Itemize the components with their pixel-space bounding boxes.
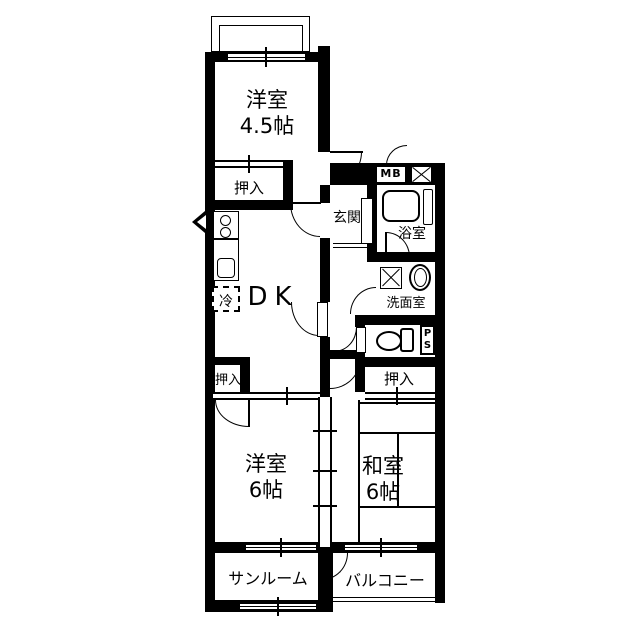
closet-west-label: 押入 [214, 369, 242, 388]
closet-east-sliding-front [365, 392, 435, 400]
meter-box-label: MB [377, 167, 405, 180]
bath-counter-icon [423, 189, 433, 225]
partition-tick [313, 430, 337, 432]
washbasin-inner [414, 268, 427, 287]
west6-size: 6帖 [216, 474, 316, 504]
door-leaf-room45 [330, 151, 363, 153]
window-tick [248, 155, 250, 173]
toilet-tank-icon [400, 328, 414, 352]
door-leaf-wc [356, 327, 366, 353]
meter-box: MB [376, 166, 406, 183]
wall-genkan-left-a [320, 185, 330, 203]
wall-right-outer [435, 163, 445, 603]
closet-top-label: 押入 [226, 177, 272, 198]
wall-closet-top-bottom [205, 200, 293, 210]
door-leaf-east6 [330, 357, 361, 359]
door-leaf-bathroom [385, 232, 387, 257]
refrigerator-label: 冷 [214, 291, 238, 311]
door-leaf-genkan-dk [290, 202, 321, 204]
wall-right-of-room45 [318, 46, 330, 152]
vent-icon-inner [197, 215, 206, 229]
toilet-icon [376, 331, 402, 351]
door-leaf-west6 [248, 400, 250, 427]
window-tick [380, 538, 382, 557]
tatami-line [358, 402, 436, 404]
door-arc-entrance [386, 145, 407, 165]
sliding-partition-west6-east6 [318, 397, 332, 547]
sliding-door-dk-west6 [213, 392, 320, 400]
window-tick [265, 47, 267, 67]
door-leaf-hall-dk [317, 302, 328, 337]
refrigerator-icon: 冷 [212, 286, 240, 312]
window-tick [280, 538, 282, 557]
door-arc-washroom [350, 287, 376, 314]
stove-burner-icon [220, 215, 231, 226]
dk-label: DK [240, 282, 306, 312]
bathtub-icon [382, 190, 420, 222]
stove-burner-icon [220, 227, 231, 238]
entrance-edge-line [333, 243, 367, 248]
wall-wc-left-upper [355, 315, 365, 327]
sunroom-label: サンルーム [216, 565, 320, 589]
bathroom-label: 浴室 [395, 223, 429, 243]
balcony-label: バルコニー [335, 567, 435, 591]
door-arc-west6 [215, 400, 249, 427]
meter-xbox-icon [411, 166, 432, 183]
window-tick [277, 597, 279, 616]
wall-left-outer [205, 52, 215, 612]
window-tick [286, 387, 288, 405]
wall-genkan-left-b [320, 238, 330, 302]
wall-hall-left [320, 337, 330, 397]
room45-size: 4.5帖 [217, 110, 317, 140]
pipe-space-s-label: S [422, 339, 433, 352]
pipe-space-box: P S [422, 327, 433, 353]
kitchen-sink-icon [217, 258, 235, 278]
eaves-outline-inner [219, 25, 303, 52]
door-arc-wc [334, 327, 357, 352]
balcony-rail [333, 597, 435, 602]
entrance-label: 玄関 [331, 207, 363, 227]
wall-wc-bottom [355, 357, 445, 367]
wall-washroom-wc [355, 315, 445, 325]
floor-plan: 冷 MB P S 洋室 4.5帖 押入 DK 玄関 浴室 洗面室 押入 押入 洋… [0, 0, 640, 640]
washroom-label: 洗面室 [384, 292, 428, 311]
east6-size: 6帖 [333, 476, 433, 506]
closet-east-label: 押入 [376, 368, 422, 389]
washing-machine-xbox-icon [380, 267, 402, 289]
door-arc-genkan-dk [290, 203, 320, 237]
